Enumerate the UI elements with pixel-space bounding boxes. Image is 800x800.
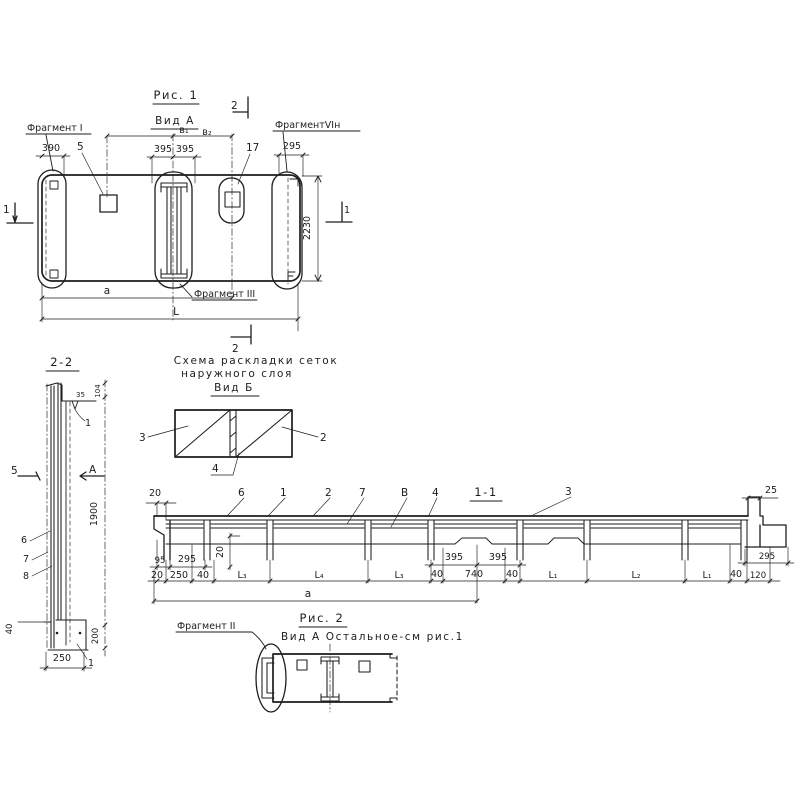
section11-title: 1-1 — [474, 485, 498, 499]
fragment3-label: Фрагмент III — [194, 289, 255, 300]
dim-20-vert: 20 — [215, 546, 226, 558]
drawing-sheet: Рис. 1 Вид А 2 Фрагмент I ФрагментVIн Фр… — [0, 0, 800, 800]
dim-40: 40 — [5, 624, 15, 635]
schema-label-3: 3 — [139, 432, 146, 444]
beam-right-end — [745, 497, 786, 547]
dim-395b-beam: 395 — [489, 552, 507, 563]
dimb-20: 20 — [151, 570, 163, 581]
beam-label-v: В — [401, 487, 408, 499]
section-1-1: 20 6 1 2 7 В 4 1-1 3 25 95 — [146, 485, 794, 604]
dimb-L4: L₄ — [314, 570, 323, 581]
schema-label-4: 4 — [212, 463, 219, 475]
label-1-bottom: 1 — [88, 658, 94, 669]
figure1-view-label: Вид А — [155, 115, 195, 127]
figure2-subtitle: Вид А Остальное-см рис.1 — [281, 631, 464, 643]
dimb-40c: 40 — [506, 569, 518, 580]
dim-L: L — [173, 306, 179, 318]
dim-a: а — [104, 285, 110, 297]
dim-20-top: 20 — [149, 488, 161, 499]
fragment2-label: Фрагмент II — [177, 621, 235, 632]
beam-label-7: 7 — [359, 487, 366, 499]
beam-label-3: 3 — [565, 486, 572, 498]
dimb-L1b: L₁ — [702, 570, 711, 581]
fragment1-label: Фрагмент I — [27, 123, 83, 134]
beam-ribs — [204, 520, 747, 560]
technical-drawing: Рис. 1 Вид А 2 Фрагмент I ФрагментVIн Фр… — [0, 0, 800, 800]
label-6: 6 — [21, 535, 27, 546]
schema-title-line2: наружного слоя — [181, 368, 293, 380]
channel-detail — [161, 183, 187, 278]
label-1-top: 1 — [85, 418, 91, 429]
dim-25: 25 — [765, 485, 777, 496]
dimb-L1a: L₁ — [548, 570, 557, 581]
figure1-plan-view: Рис. 1 Вид А 2 Фрагмент I ФрагментVIн Фр… — [3, 88, 360, 355]
dim-b2: в₂ — [202, 127, 212, 138]
dim-395a-beam: 395 — [445, 552, 463, 563]
dim-250: 250 — [53, 653, 71, 664]
schema-label-2: 2 — [320, 432, 327, 444]
section2-marker-top: 2 — [231, 100, 238, 112]
beam-web-line — [166, 538, 741, 544]
dimb-120: 120 — [750, 571, 766, 581]
schema-view-label: Вид Б — [214, 382, 254, 394]
label-35: 35 — [76, 391, 85, 399]
dimb-250: 250 — [170, 570, 188, 581]
label-5: 5 — [77, 141, 84, 153]
dim-395a: 395 — [154, 144, 172, 155]
beam-left-end — [154, 516, 170, 560]
beam-mesh-layer — [166, 524, 741, 528]
dim-2230: 2230 — [302, 216, 313, 240]
dim-295-right: 295 — [759, 552, 775, 562]
dimb-40a: 40 — [197, 570, 209, 581]
label-7: 7 — [23, 554, 29, 565]
schema-title-line1: Схема раскладки сеток — [174, 355, 339, 367]
figure1-title: Рис. 1 — [154, 88, 199, 102]
square-opening — [100, 195, 117, 212]
label-17: 17 — [246, 142, 259, 154]
beam-label-6: 6 — [238, 487, 245, 499]
dimb-740: 740 — [465, 569, 483, 580]
dim-395b: 395 — [176, 144, 194, 155]
dim-200: 200 — [91, 628, 101, 644]
section2-marker-bottom: 2 — [232, 343, 239, 355]
dim-390: 390 — [42, 143, 60, 154]
dimb-40b: 40 — [431, 569, 443, 580]
section-2-2: 2-2 35 1 104 1900 200 5 А 6 7 8 — [5, 355, 107, 671]
section1-marker-left: 1 — [3, 204, 10, 216]
label-8: 8 — [23, 571, 29, 582]
figure2-title: Рис. 2 — [300, 611, 345, 625]
beam-label-1: 1 — [280, 487, 287, 499]
dimb-L3a: L₃ — [237, 570, 246, 581]
dim-295-left: 295 — [178, 554, 196, 565]
dimb-40d: 40 — [730, 569, 742, 580]
dimb-L2: L₂ — [631, 570, 640, 581]
marker-5: 5 — [11, 465, 18, 477]
dim-295: 295 — [283, 141, 301, 152]
dimb-L3b: L₃ — [394, 570, 403, 581]
section22-title: 2-2 — [50, 355, 74, 369]
fragment6-label: ФрагментVIн — [275, 120, 340, 131]
beam-label-4: 4 — [432, 487, 439, 499]
mesh-schema: Схема раскладки сеток наружного слоя Вид… — [139, 355, 338, 475]
dim-104: 104 — [94, 384, 102, 398]
figure2: Рис. 2 Вид А Остальное-см рис.1 Фрагмент… — [176, 611, 464, 712]
beam-label-2: 2 — [325, 487, 332, 499]
section1-marker-right: 1 — [344, 205, 350, 216]
dim-a-beam: а — [305, 588, 311, 600]
marker-a: А — [89, 464, 97, 476]
fragment6-bubble — [272, 172, 302, 289]
dim-b1: в₁ — [179, 125, 189, 136]
dim-1900: 1900 — [89, 502, 100, 526]
dim-95: 95 — [155, 556, 166, 566]
